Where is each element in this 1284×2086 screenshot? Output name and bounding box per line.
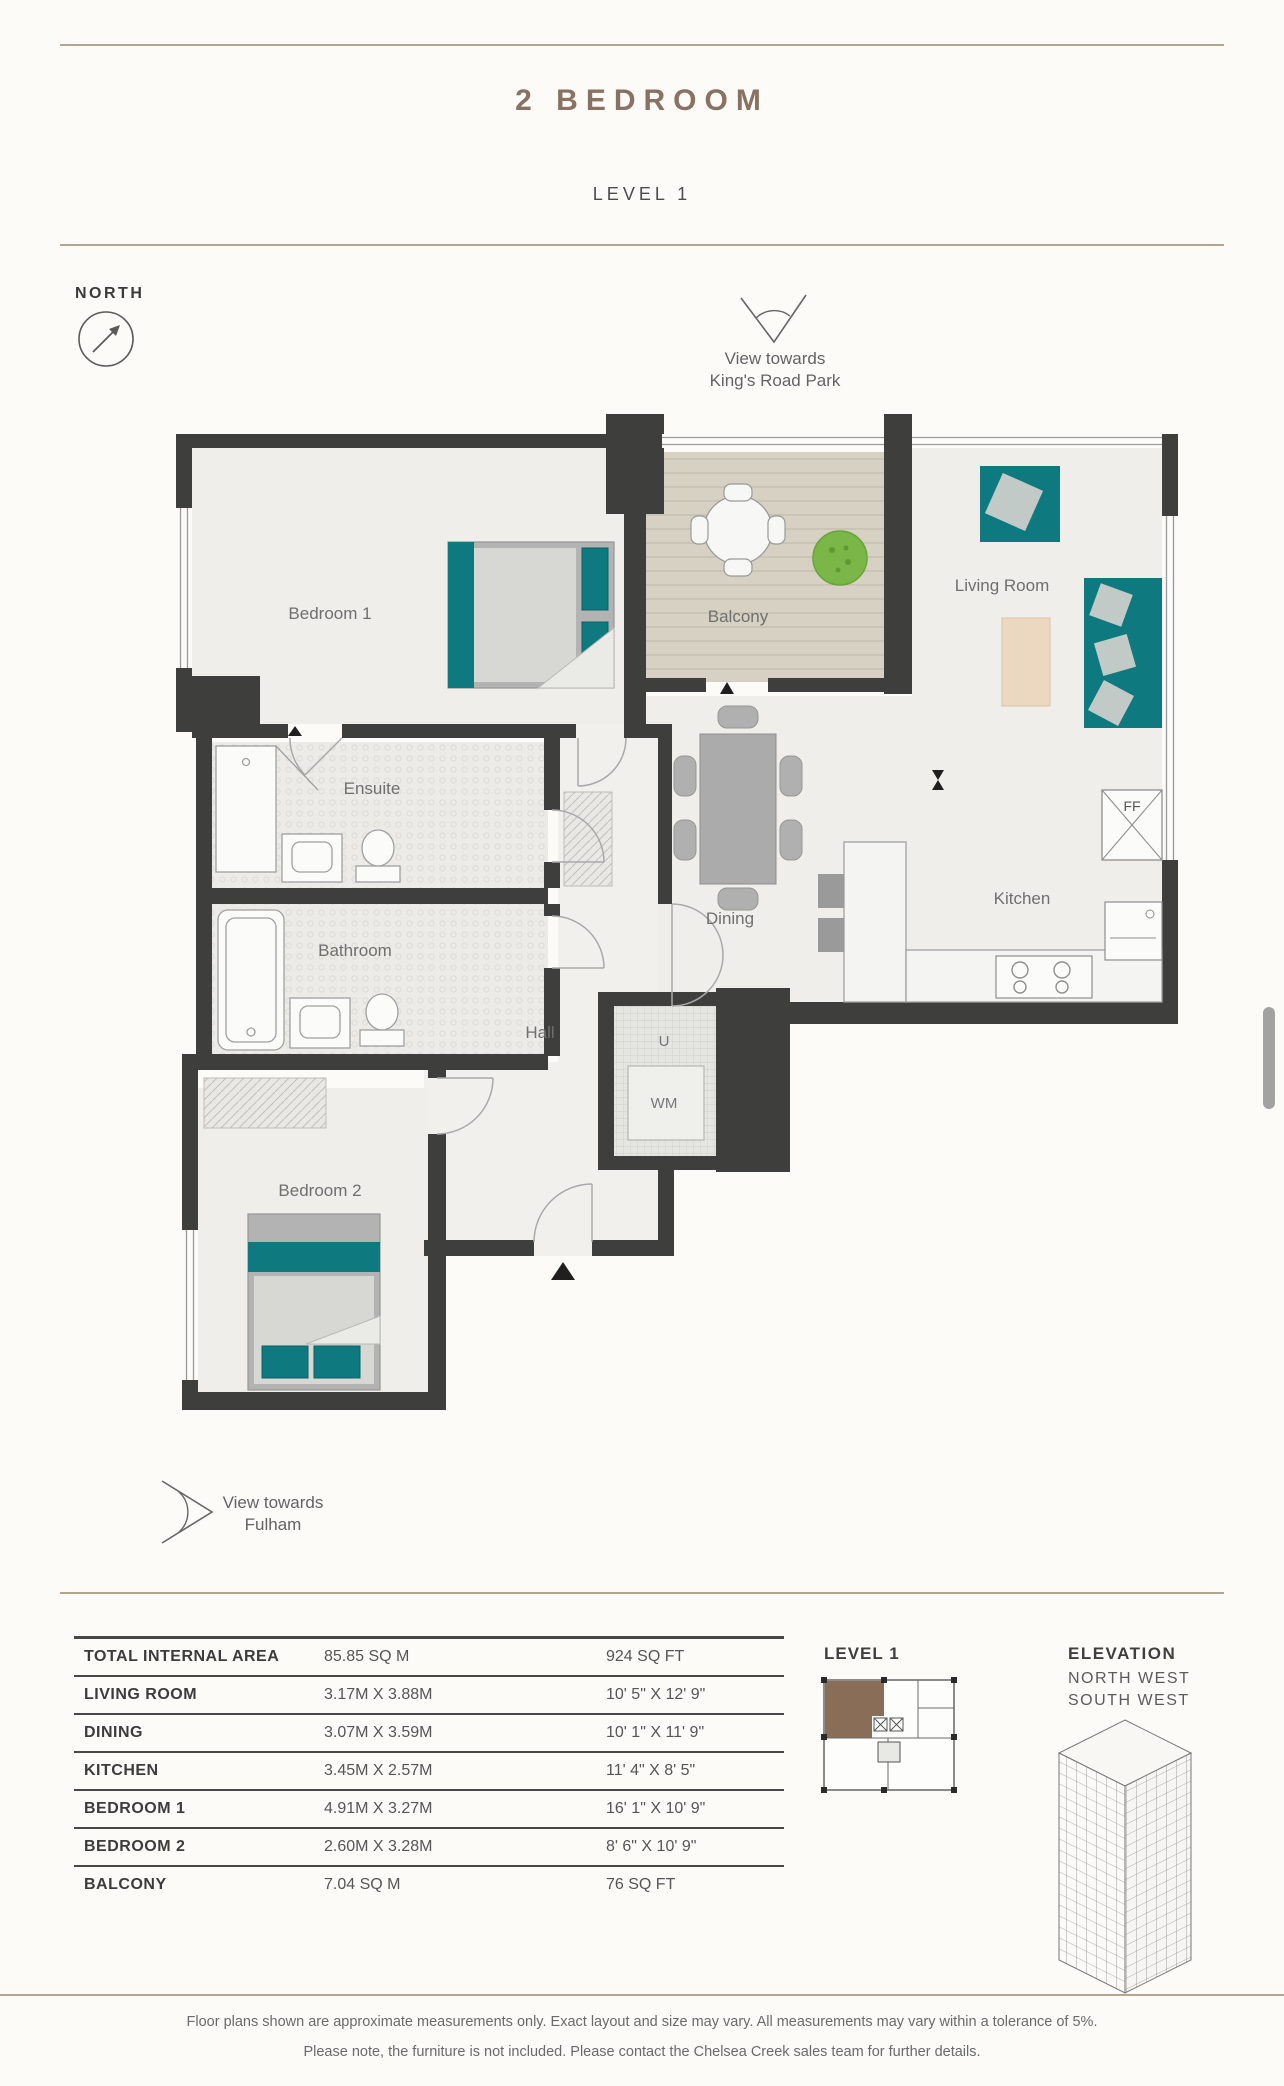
stool [818, 874, 844, 908]
elevation-subtitle: NORTH WEST SOUTH WEST [1068, 1668, 1190, 1712]
footer-line1: Floor plans shown are approximate measur… [0, 2014, 1284, 2030]
row-label: LIVING ROOM [74, 1686, 324, 1704]
row-imperial: 8' 6" X 10' 9" [606, 1838, 784, 1856]
living-right-window [1162, 516, 1178, 860]
row-label: DINING [74, 1724, 324, 1742]
elevation-line2: SOUTH WEST [1068, 1690, 1190, 1712]
bathroom-sink [290, 998, 350, 1048]
row-label: KITCHEN [74, 1762, 324, 1780]
row-imperial: 11' 4" X 8' 5" [606, 1762, 784, 1780]
dining-table [700, 734, 776, 884]
row-label: BALCONY [74, 1876, 324, 1894]
brochure-page: 2 BEDROOM LEVEL 1 NORTH View towards Kin… [0, 0, 1284, 2086]
label-kitchen: Kitchen [994, 889, 1051, 908]
row-label: TOTAL INTERNAL AREA [74, 1648, 324, 1666]
row-metric: 85.85 SQ M [324, 1648, 606, 1666]
row-imperial: 76 SQ FT [606, 1876, 784, 1894]
bedroom1-marker [288, 726, 302, 736]
row-metric: 3.07M X 3.59M [324, 1724, 606, 1742]
view-cone-icon [738, 294, 808, 346]
label-bathroom: Bathroom [318, 941, 392, 960]
label-fridge-freezer: FF [1123, 798, 1140, 814]
row-imperial: 16' 1" X 10' 9" [606, 1800, 784, 1818]
footer-line2: Please note, the furniture is not includ… [0, 2044, 1284, 2060]
label-hall: Hall [525, 1023, 554, 1042]
row-metric: 4.91M X 3.27M [324, 1800, 606, 1818]
tower-right-face [1125, 1753, 1191, 1993]
hall-wardrobe [564, 792, 612, 886]
coffee-table [1002, 618, 1050, 706]
oven [1105, 902, 1162, 960]
elevation-tower [1056, 1716, 1194, 1995]
balcony-window [662, 434, 884, 448]
kitchen-counter-left [844, 842, 906, 1002]
view-label-bottom-line1: View towards [188, 1492, 358, 1514]
table-row: BEDROOM 2 2.60M X 3.28M 8' 6" X 10' 9" [74, 1829, 784, 1867]
hob [996, 956, 1092, 998]
floor-plan: Bedroom 1 Balcony Living Room Ensuite Ba… [140, 390, 1200, 1450]
bedroom2-wardrobe [204, 1078, 326, 1128]
scrollbar-thumb[interactable] [1263, 1007, 1275, 1109]
table-row: LIVING ROOM 3.17M X 3.88M 10' 5" X 12' 9… [74, 1677, 784, 1715]
page-title: 2 BEDROOM [0, 84, 1284, 118]
label-utility: U [659, 1033, 670, 1050]
balcony-door-arrow [720, 682, 734, 694]
row-metric: 7.04 SQ M [324, 1876, 606, 1894]
living-top-window [912, 434, 1162, 448]
row-metric: 3.17M X 3.88M [324, 1686, 606, 1704]
bedroom1-window [176, 508, 192, 668]
sofa [1084, 578, 1162, 728]
bedroom1-bed [448, 542, 614, 688]
measurements-table: TOTAL INTERNAL AREA 85.85 SQ M 924 SQ FT… [74, 1636, 784, 1903]
table-row: TOTAL INTERNAL AREA 85.85 SQ M 924 SQ FT [74, 1639, 784, 1677]
entrance-arrow [551, 1262, 575, 1280]
table-row: KITCHEN 3.45M X 2.57M 11' 4" X 8' 5" [74, 1753, 784, 1791]
divider-footer [0, 1994, 1284, 1996]
balcony-plant [813, 531, 867, 585]
row-label: BEDROOM 1 [74, 1800, 324, 1818]
label-bedroom2: Bedroom 2 [278, 1181, 361, 1200]
bedroom2-bed [248, 1214, 380, 1390]
balcony-table [704, 496, 772, 564]
row-imperial: 924 SQ FT [606, 1648, 784, 1666]
view-label-bottom: View towards Fulham [188, 1492, 358, 1536]
row-label: BEDROOM 2 [74, 1838, 324, 1856]
divider-under-heading [60, 244, 1224, 246]
north-compass-icon [76, 309, 138, 371]
bathtub [218, 910, 284, 1050]
row-imperial: 10' 1" X 11' 9" [606, 1724, 784, 1742]
ensuite-sink [282, 834, 342, 882]
armchair [980, 466, 1060, 542]
label-living: Living Room [955, 576, 1050, 595]
elevation-line1: NORTH WEST [1068, 1668, 1190, 1690]
label-dining: Dining [706, 909, 754, 928]
view-label-bottom-line2: Fulham [188, 1514, 358, 1536]
stool [818, 918, 844, 952]
page-subtitle: LEVEL 1 [0, 184, 1284, 205]
view-label-top-line2: King's Road Park [660, 370, 890, 392]
table-row: BALCONY 7.04 SQ M 76 SQ FT [74, 1867, 784, 1903]
label-balcony: Balcony [708, 607, 769, 626]
bedroom2-window [182, 1230, 198, 1380]
table-row: BEDROOM 1 4.91M X 3.27M 16' 1" X 10' 9" [74, 1791, 784, 1829]
divider-top [60, 44, 1224, 46]
row-metric: 3.45M X 2.57M [324, 1762, 606, 1780]
row-imperial: 10' 5" X 12' 9" [606, 1686, 784, 1704]
tower-left-face [1059, 1753, 1125, 1993]
keyplan [818, 1674, 962, 1798]
table-row: DINING 3.07M X 3.59M 10' 1" X 11' 9" [74, 1715, 784, 1753]
divider-above-table [60, 1592, 1224, 1594]
label-bedroom1: Bedroom 1 [288, 604, 371, 623]
view-label-top: View towards King's Road Park [660, 348, 890, 392]
label-ensuite: Ensuite [344, 779, 401, 798]
view-label-top-line1: View towards [660, 348, 890, 370]
keyplan-title: LEVEL 1 [824, 1644, 900, 1664]
north-label: NORTH [75, 285, 144, 303]
elevation-title: ELEVATION [1068, 1644, 1176, 1664]
row-metric: 2.60M X 3.28M [324, 1838, 606, 1856]
label-washing-machine: WM [651, 1095, 678, 1112]
